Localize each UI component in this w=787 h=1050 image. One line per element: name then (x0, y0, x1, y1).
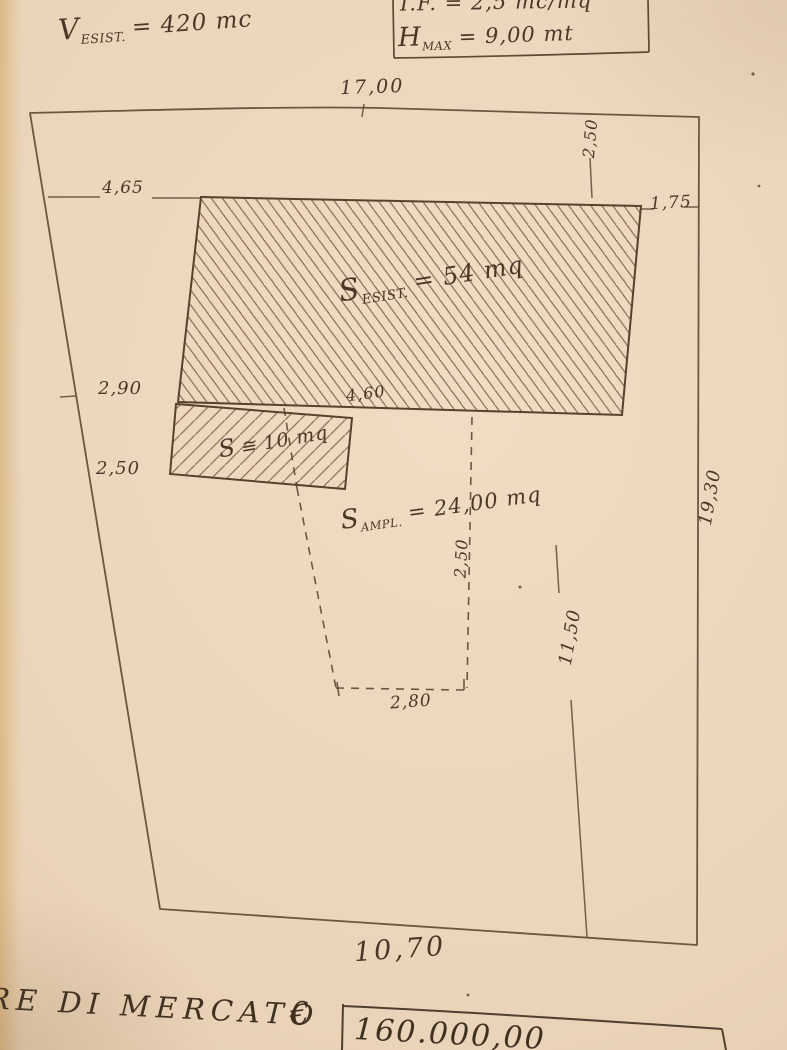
existing-building-footprint (178, 197, 641, 415)
dim-top-width: 17,00 (340, 77, 405, 99)
dim-left-top: 4,65 (102, 180, 144, 198)
dim-left-lower: 2,50 (96, 460, 140, 479)
label-building-index: I.F. = 2,5 mc/mq (400, 0, 592, 15)
label-existing-volume-symbol: V (57, 11, 81, 46)
euro-symbol: € (288, 997, 312, 1032)
dim-right-top: 1,75 (650, 194, 693, 214)
dim-bottom-width: 10,70 (353, 933, 447, 968)
scanned-site-plan: VESIST.= 420 mc I.F. = 2,5 mc/mq HMAX= 9… (0, 0, 787, 1050)
dim-expansion-width: 2,80 (389, 693, 432, 714)
dim-left-mid: 2,90 (98, 380, 142, 399)
